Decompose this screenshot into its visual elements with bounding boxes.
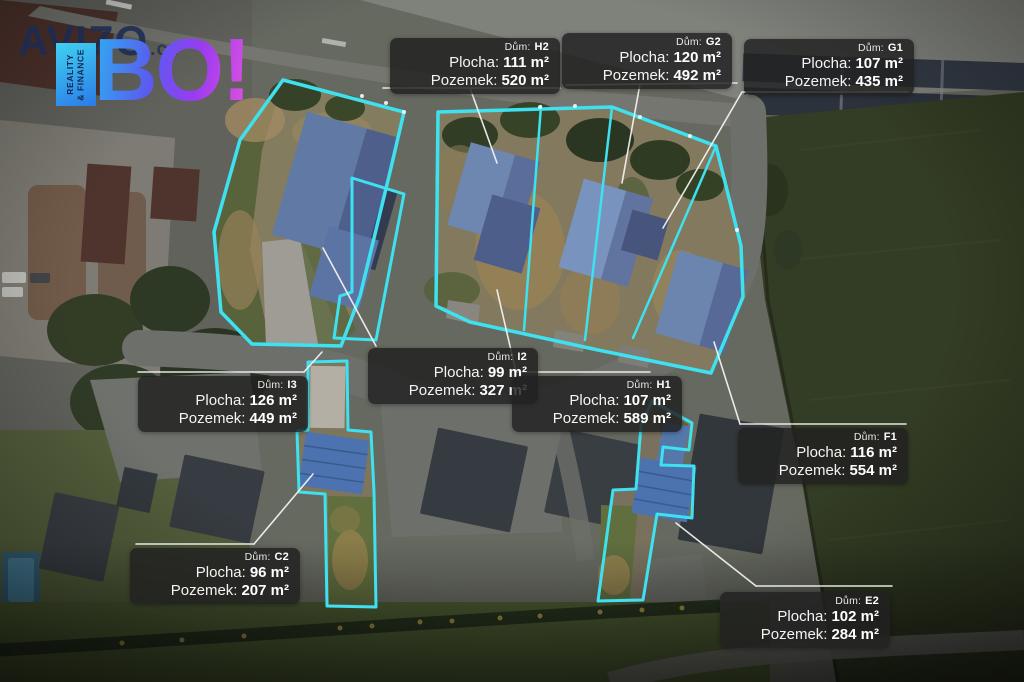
plot-label-h2: Dům:H2 Plocha:111 m² Pozemek:520 m² [390,38,560,94]
plot-label-f1: Dům:F1 Plocha:116 m² Pozemek:554 m² [738,428,908,484]
aerial-listing-image: AVIZO.cz REALITY & FINANCE BO! Dům:H2 Pl… [0,0,1024,682]
avizo-bo-logo: AVIZO.cz REALITY & FINANCE BO! [10,16,225,126]
plot-label-g1: Dům:G1 Plocha:107 m² Pozemek:435 m² [744,39,914,95]
plot-label-g2: Dům:G2 Plocha:120 m² Pozemek:492 m² [562,33,732,89]
reality-finance-badge: REALITY & FINANCE [56,43,96,106]
plot-label-i3: Dům:I3 Plocha:126 m² Pozemek:449 m² [138,376,308,432]
plot-label-e2: Dům:E2 Plocha:102 m² Pozemek:284 m² [720,592,890,648]
bo-wordmark: BO! [94,28,249,112]
plot-label-c2: Dům:C2 Plocha:96 m² Pozemek:207 m² [130,548,300,604]
plot-label-h1: Dům:H1 Plocha:107 m² Pozemek:589 m² [512,376,682,432]
